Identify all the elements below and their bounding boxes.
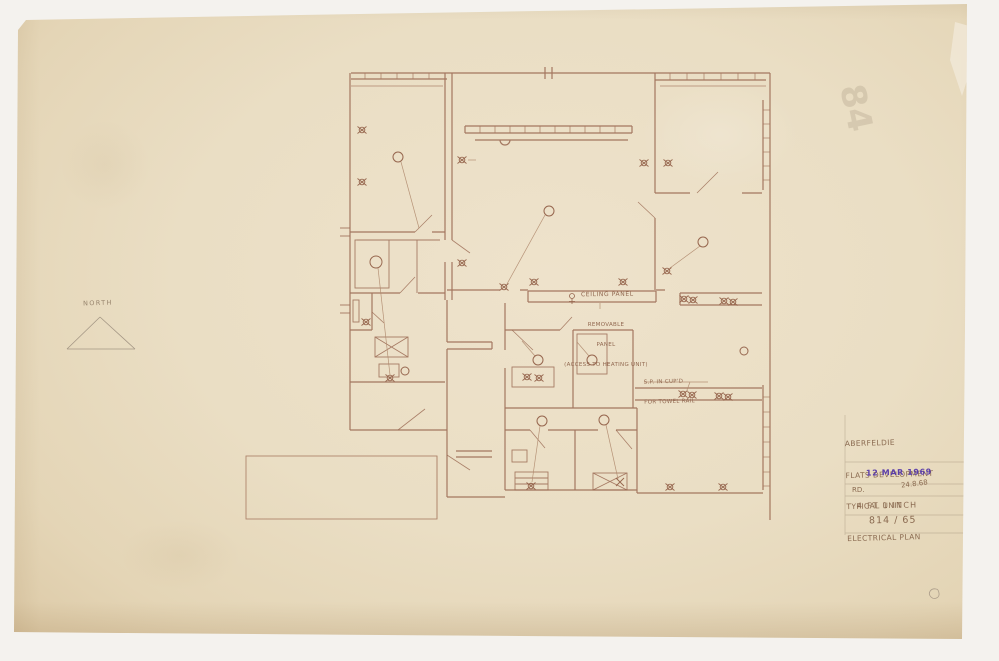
walls-layer (350, 67, 770, 520)
annotation-ceiling-panel: CEILING PANEL (581, 291, 634, 298)
pencil-doodle (929, 589, 939, 599)
wall-stubs (340, 228, 350, 313)
annotation-towel-line1: S.P. IN CUP'D (644, 378, 695, 386)
annotation-towel-line2: FOR TOWEL RAIL (644, 398, 695, 406)
drawing-sheet-paper: NORTH CEILING PANEL REMOVABLE PANEL (ACC… (0, 0, 999, 661)
title-project-line1: ABERFELDIE (845, 437, 933, 450)
north-arrow (67, 317, 135, 349)
windows-layer (351, 73, 770, 486)
balcony-outline (246, 456, 437, 519)
scale-note: 4 FT 1 INCH (857, 500, 917, 510)
received-note: RD. (852, 486, 864, 494)
annotation-towel-rail: S.P. IN CUP'D FOR TOWEL RAIL (643, 364, 695, 420)
annotation-removable-line1: REMOVABLE (552, 322, 660, 329)
drawing-number: 814 / 65 (869, 515, 917, 527)
date-stamp: 12 MAR 1969 (866, 467, 932, 477)
north-label: NORTH (83, 298, 113, 307)
title-project-line4: ELECTRICAL PLAN (847, 531, 935, 544)
annotation-removable-line2: PANEL (552, 342, 660, 349)
